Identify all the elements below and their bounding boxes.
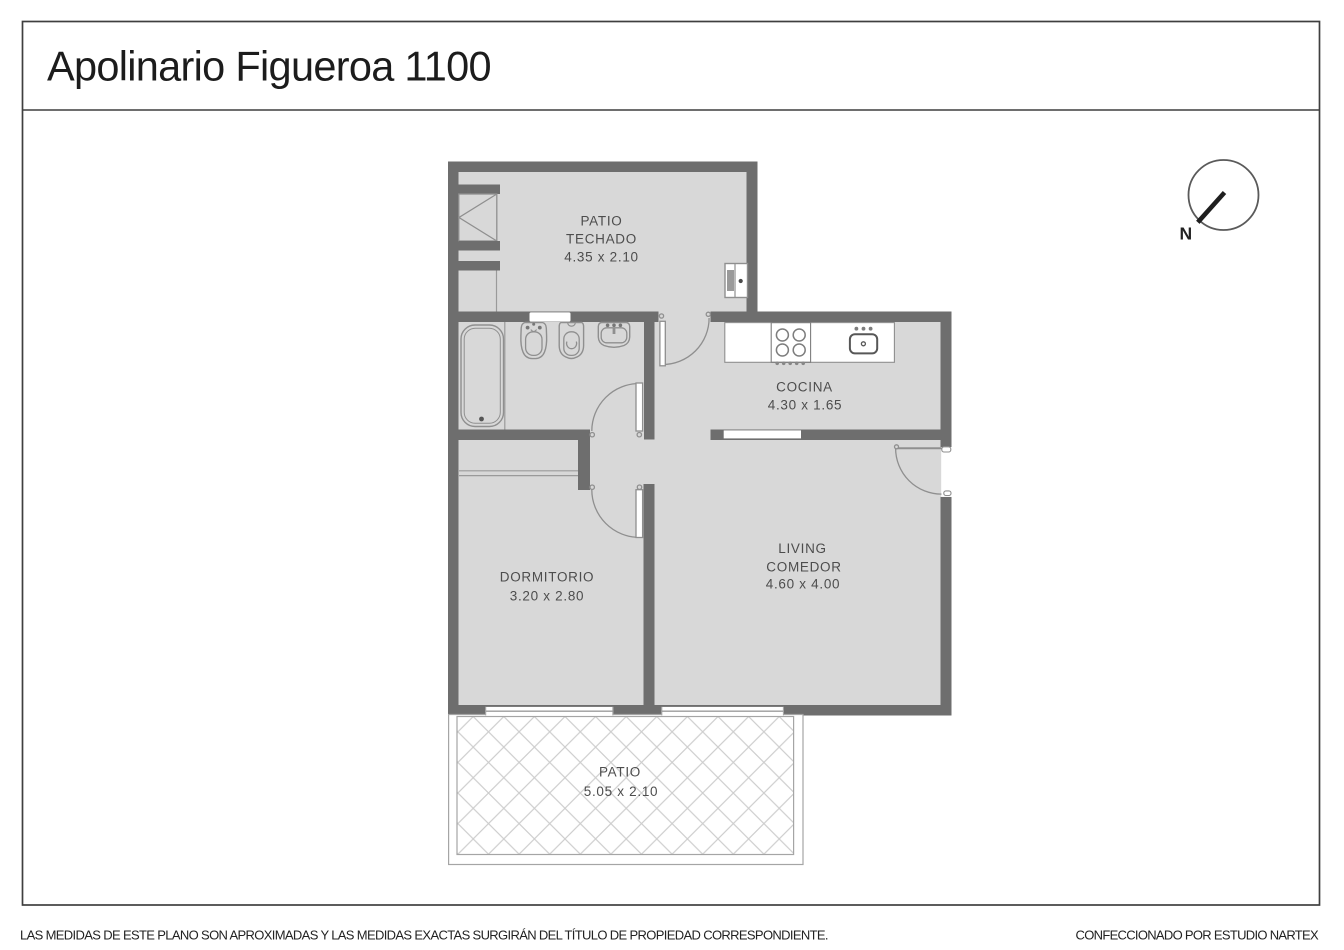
svg-text:COCINA: COCINA	[776, 380, 833, 395]
svg-text:Apolinario Figueroa 1100: Apolinario Figueroa 1100	[47, 43, 491, 90]
svg-text:PATIO: PATIO	[580, 214, 622, 229]
svg-text:PATIO: PATIO	[599, 765, 641, 780]
svg-text:5.05 x 2.10: 5.05 x 2.10	[584, 784, 659, 799]
svg-text:LIVING: LIVING	[778, 541, 826, 556]
svg-text:DORMITORIO: DORMITORIO	[500, 570, 595, 585]
svg-text:4.30 x 1.65: 4.30 x 1.65	[768, 398, 843, 413]
svg-text:LAS MEDIDAS DE ESTE PLANO SON: LAS MEDIDAS DE ESTE PLANO SON APROXIMADA…	[20, 928, 828, 943]
svg-text:4.35 x 2.10: 4.35 x 2.10	[564, 250, 639, 265]
svg-text:4.60 x 4.00: 4.60 x 4.00	[766, 577, 841, 592]
svg-text:TECHADO: TECHADO	[566, 232, 637, 247]
svg-text:CONFECCIONADO POR ESTUDIO NART: CONFECCIONADO POR ESTUDIO NARTEX	[1076, 928, 1319, 943]
svg-text:3.20 x 2.80: 3.20 x 2.80	[510, 589, 585, 604]
svg-text:N: N	[1180, 224, 1193, 244]
svg-text:COMEDOR: COMEDOR	[766, 560, 841, 575]
